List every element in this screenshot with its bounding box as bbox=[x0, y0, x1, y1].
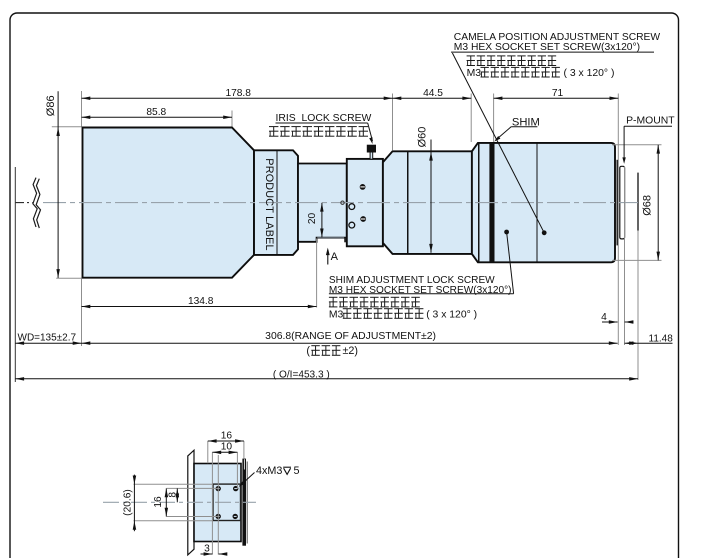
svg-text:306.8(RANGE OF ADJUSTMENT±2): 306.8(RANGE OF ADJUSTMENT±2) bbox=[265, 331, 436, 342]
svg-text:IRIS LOCK SCREW: IRIS LOCK SCREW bbox=[276, 113, 372, 124]
svg-text:5: 5 bbox=[294, 465, 300, 477]
svg-text:4xM3: 4xM3 bbox=[256, 465, 282, 477]
svg-text:11.48: 11.48 bbox=[649, 334, 674, 345]
svg-text:10: 10 bbox=[221, 442, 233, 453]
svg-text:(20.6): (20.6) bbox=[122, 489, 133, 516]
svg-text:M3 HEX SOCKET SET SCREW(3x120°: M3 HEX SOCKET SET SCREW(3x120°) bbox=[454, 42, 640, 53]
svg-text:4: 4 bbox=[601, 312, 607, 323]
svg-text:M3: M3 bbox=[467, 68, 482, 79]
svg-text:Ø68: Ø68 bbox=[642, 195, 654, 216]
svg-text:( O/I=453.3 ): ( O/I=453.3 ) bbox=[273, 370, 330, 381]
svg-text:PRODUCT LABEL: PRODUCT LABEL bbox=[263, 158, 275, 250]
svg-text:(: ( bbox=[306, 345, 310, 357]
svg-text:20: 20 bbox=[307, 213, 318, 225]
svg-text:±2): ±2) bbox=[343, 345, 359, 357]
svg-text:16: 16 bbox=[221, 430, 233, 441]
svg-text:WD=135±2.7: WD=135±2.7 bbox=[18, 332, 77, 343]
svg-text:Ø86: Ø86 bbox=[45, 95, 57, 116]
svg-text:M3: M3 bbox=[329, 310, 344, 321]
svg-text:8: 8 bbox=[168, 492, 179, 498]
svg-text:A: A bbox=[331, 251, 339, 263]
svg-text:71: 71 bbox=[552, 88, 564, 99]
svg-text:178.8: 178.8 bbox=[225, 88, 251, 99]
svg-text:Ø60: Ø60 bbox=[417, 127, 429, 148]
svg-text:3: 3 bbox=[204, 544, 210, 555]
svg-text:( 3 x 120° ): ( 3 x 120° ) bbox=[426, 310, 477, 321]
svg-text:16: 16 bbox=[153, 496, 164, 508]
svg-text:( 3 x 120° ): ( 3 x 120° ) bbox=[564, 68, 615, 79]
svg-text:44.5: 44.5 bbox=[423, 88, 443, 99]
svg-text:85.8: 85.8 bbox=[146, 107, 166, 118]
svg-text:P-MOUNT: P-MOUNT bbox=[626, 115, 675, 126]
svg-text:134.8: 134.8 bbox=[188, 296, 214, 307]
